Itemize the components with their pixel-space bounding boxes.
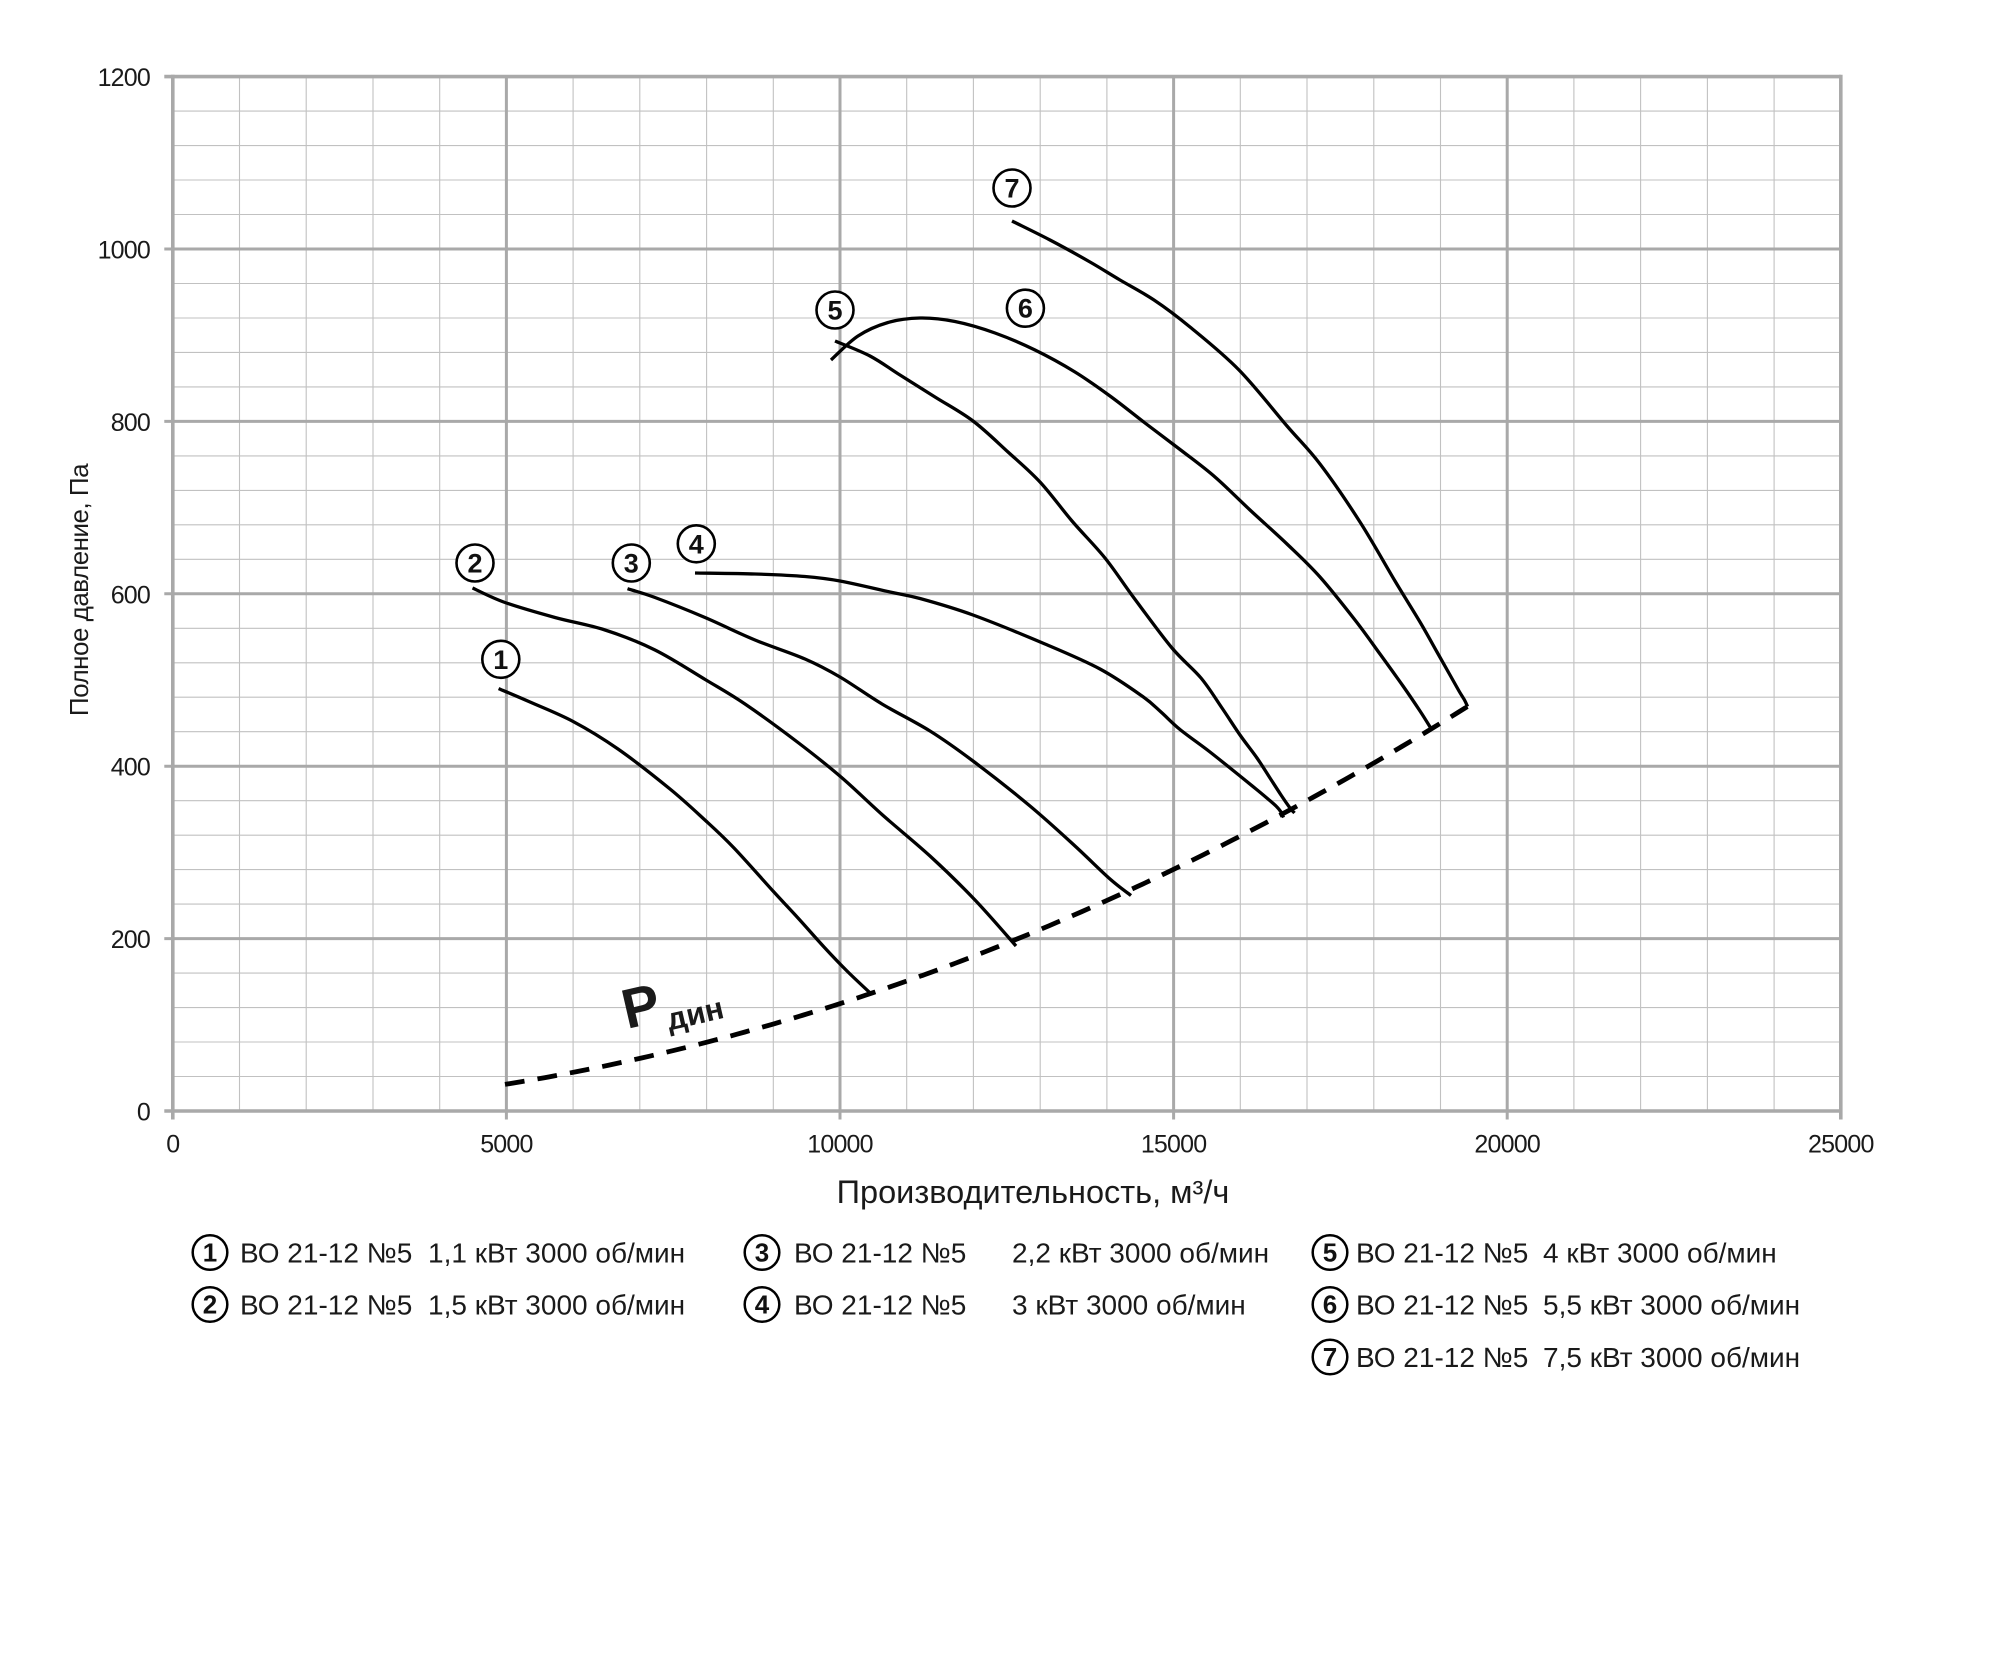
svg-text:3: 3: [755, 1238, 769, 1268]
svg-text:10000: 10000: [807, 1131, 873, 1159]
svg-text:Полное давление, Па: Полное давление, Па: [64, 463, 94, 716]
svg-text:2: 2: [203, 1290, 217, 1320]
svg-text:15000: 15000: [1141, 1131, 1207, 1159]
svg-text:ВО 21-12 №5: ВО 21-12 №5: [1356, 1342, 1528, 1373]
svg-text:5,5 кВт 3000 об/мин: 5,5 кВт 3000 об/мин: [1543, 1290, 1800, 1321]
svg-text:200: 200: [111, 926, 150, 954]
svg-text:3 кВт 3000 об/мин: 3 кВт 3000 об/мин: [1012, 1290, 1246, 1321]
svg-text:1000: 1000: [98, 237, 150, 265]
svg-text:5: 5: [1323, 1238, 1337, 1268]
svg-text:2: 2: [467, 549, 482, 579]
svg-text:800: 800: [111, 409, 150, 437]
svg-text:400: 400: [111, 754, 150, 782]
svg-text:ВО 21-12 №5: ВО 21-12 №5: [794, 1238, 966, 1269]
svg-text:1,5 кВт 3000 об/мин: 1,5 кВт 3000 об/мин: [428, 1290, 685, 1321]
svg-text:4: 4: [755, 1290, 770, 1320]
svg-text:5: 5: [827, 296, 842, 326]
svg-text:600: 600: [111, 581, 150, 609]
svg-text:7,5 кВт 3000 об/мин: 7,5 кВт 3000 об/мин: [1543, 1342, 1800, 1373]
svg-text:7: 7: [1323, 1342, 1337, 1372]
svg-text:ВО 21-12 №5: ВО 21-12 №5: [240, 1290, 412, 1321]
svg-text:6: 6: [1323, 1290, 1337, 1320]
svg-text:7: 7: [1004, 174, 1019, 204]
svg-text:ВО 21-12 №5: ВО 21-12 №5: [794, 1290, 966, 1321]
svg-text:1,1 кВт 3000 об/мин: 1,1 кВт 3000 об/мин: [428, 1238, 685, 1269]
svg-text:20000: 20000: [1474, 1131, 1540, 1159]
svg-text:1: 1: [203, 1238, 217, 1268]
svg-text:25000: 25000: [1808, 1131, 1874, 1159]
svg-text:2,2 кВт 3000 об/мин: 2,2 кВт 3000 об/мин: [1012, 1238, 1269, 1269]
svg-text:Производительность, м³/ч: Производительность, м³/ч: [837, 1174, 1230, 1210]
svg-text:0: 0: [137, 1099, 150, 1127]
svg-text:ВО 21-12 №5: ВО 21-12 №5: [1356, 1238, 1528, 1269]
svg-text:1200: 1200: [98, 64, 150, 92]
svg-text:5000: 5000: [480, 1131, 532, 1159]
svg-text:ВО 21-12 №5: ВО 21-12 №5: [240, 1238, 412, 1269]
svg-text:3: 3: [624, 549, 639, 579]
svg-text:6: 6: [1018, 294, 1033, 324]
svg-text:ВО 21-12 №5: ВО 21-12 №5: [1356, 1290, 1528, 1321]
svg-text:4: 4: [689, 529, 704, 559]
svg-text:1: 1: [493, 645, 508, 675]
svg-text:0: 0: [166, 1131, 179, 1159]
svg-text:4 кВт 3000 об/мин: 4 кВт 3000 об/мин: [1543, 1238, 1777, 1269]
